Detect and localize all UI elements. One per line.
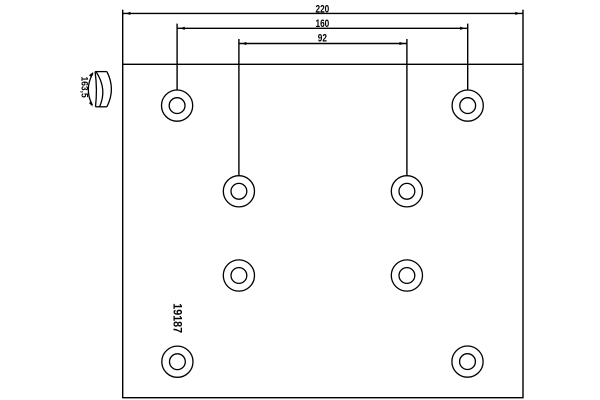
svg-text:92: 92 [318, 33, 328, 45]
svg-text:160: 160 [316, 18, 330, 30]
svg-text:19187: 19187 [170, 303, 183, 333]
svg-text:220: 220 [316, 4, 330, 16]
svg-text:163,5: 163,5 [79, 77, 90, 98]
